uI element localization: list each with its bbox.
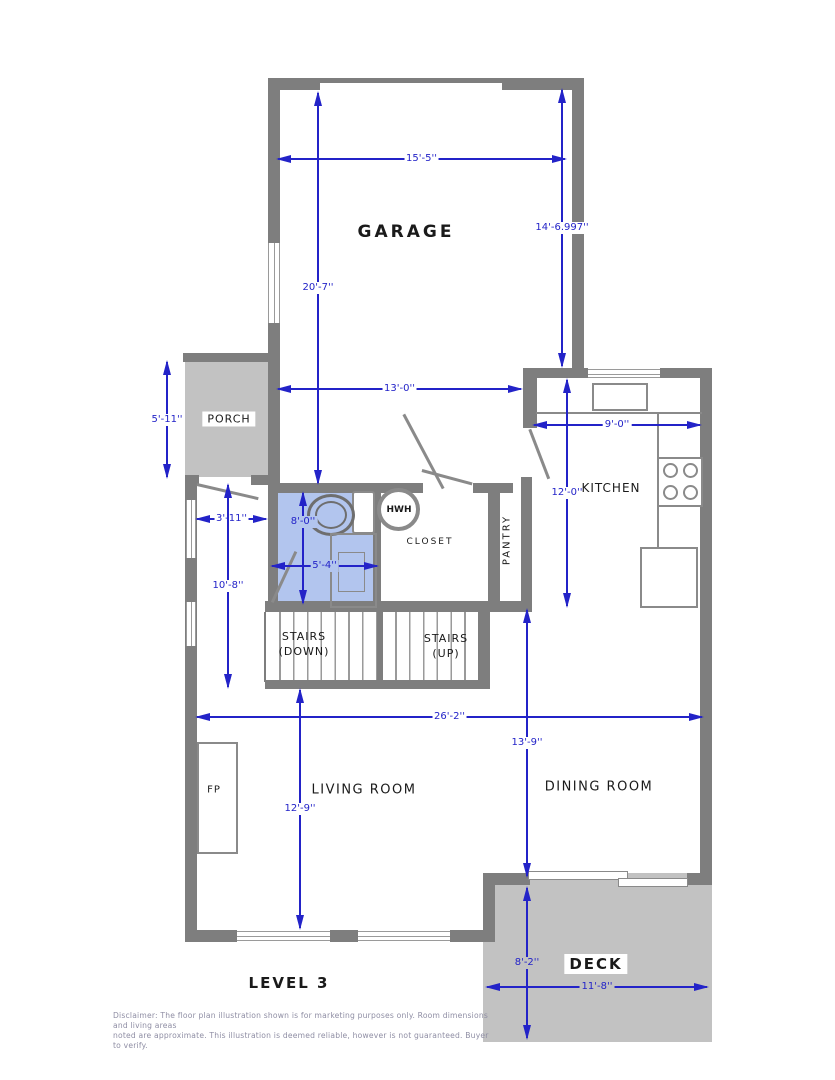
- disclaimer-line2: noted are approximate. This illustration…: [113, 1031, 493, 1051]
- dim-kitchen-width: 9'-0'': [534, 424, 700, 426]
- dim-great-room-width: 26'-2'': [197, 716, 702, 718]
- arrow-down-icon: [163, 464, 171, 479]
- arrow-down-icon: [314, 470, 322, 485]
- wall: [521, 477, 532, 612]
- dim-deck-width: 11'-8'': [487, 986, 707, 988]
- dim-dining-height: 13'-9'': [526, 610, 528, 876]
- window: [358, 931, 450, 941]
- arrow-right-icon: [364, 562, 379, 570]
- arrow-down-icon: [523, 863, 531, 878]
- dim-label: 9'-0'': [603, 419, 632, 431]
- dim-label: 15'-5'': [404, 153, 439, 165]
- arrow-down-icon: [299, 590, 307, 605]
- wall: [523, 368, 537, 428]
- wall: [700, 368, 712, 885]
- dim-bath-width: 5'-4'': [272, 565, 377, 567]
- disclaimer-line1: Disclaimer: The floor plan illustration …: [113, 1011, 493, 1031]
- stairs-up-line2: (UP): [424, 646, 468, 661]
- arrow-right-icon: [552, 155, 567, 163]
- kitchen-door-leaf: [529, 429, 550, 479]
- dim-label: 5'-4'': [310, 560, 339, 572]
- arrow-down-icon: [558, 353, 566, 368]
- arrow-up-icon: [163, 360, 171, 375]
- wall: [183, 353, 268, 362]
- closet-door-swing: [403, 414, 445, 489]
- kitchen-island: [640, 547, 698, 608]
- arrow-right-icon: [253, 515, 268, 523]
- wall: [478, 608, 490, 689]
- wall: [185, 930, 237, 942]
- dim-label: 5'-11'': [150, 414, 185, 426]
- arrow-left-icon: [485, 983, 500, 991]
- arrow-up-icon: [314, 91, 322, 106]
- wall: [264, 612, 266, 682]
- stairs-divider-wall: [377, 612, 383, 682]
- closet-label: CLOSET: [407, 537, 454, 547]
- stairs-up-label: STAIRS (UP): [424, 631, 468, 661]
- window: [237, 931, 330, 941]
- arrow-right-icon: [508, 385, 523, 393]
- porch-label: PORCH: [202, 412, 255, 427]
- toilet-tank: [352, 491, 375, 534]
- arrow-left-icon: [270, 562, 285, 570]
- dim-hall-width: 3'-11'': [197, 518, 266, 520]
- arrow-down-icon: [224, 674, 232, 689]
- window: [186, 602, 196, 646]
- burner-icon: [663, 463, 678, 478]
- kitchen-label: KITCHEN: [582, 481, 641, 495]
- burner-icon: [683, 485, 698, 500]
- arrow-right-icon: [694, 983, 709, 991]
- arrow-up-icon: [563, 378, 571, 393]
- pantry-label: PANTRY: [502, 515, 513, 565]
- wall: [185, 690, 197, 942]
- dim-kitchen-height: 12'-0'': [566, 380, 568, 606]
- dim-bath-height: 8'-0'': [302, 493, 304, 603]
- fireplace-label: FP: [207, 785, 221, 796]
- arrow-left-icon: [532, 421, 547, 429]
- dining-room-label: DINING ROOM: [545, 780, 654, 795]
- disclaimer: Disclaimer: The floor plan illustration …: [113, 1011, 493, 1051]
- arrow-left-icon: [195, 515, 210, 523]
- counter-edge: [536, 412, 702, 414]
- closet-door-leaf: [422, 469, 473, 485]
- dim-label: 20'-7'': [301, 282, 336, 294]
- arrow-left-icon: [276, 155, 291, 163]
- stairs-down-line2: (DOWN): [279, 644, 330, 659]
- garage-door-header: [318, 78, 504, 83]
- arrow-up-icon: [523, 608, 531, 623]
- arrow-right-icon: [687, 421, 702, 429]
- burner-icon: [663, 485, 678, 500]
- arrow-left-icon: [195, 713, 210, 721]
- dim-label: 11'-8'': [580, 981, 615, 993]
- arrow-up-icon: [523, 886, 531, 901]
- burner-icon: [683, 463, 698, 478]
- dim-garage-lower-width: 13'-0'': [278, 388, 521, 390]
- dim-label: 12'-9'': [283, 803, 318, 815]
- wall: [687, 873, 712, 885]
- arrow-up-icon: [558, 88, 566, 103]
- window: [186, 500, 196, 558]
- dim-garage-right: 14'-6.997'': [561, 90, 563, 366]
- arrow-right-icon: [689, 713, 704, 721]
- level-label: LEVEL 3: [249, 974, 330, 992]
- fireplace: [197, 742, 238, 854]
- dim-label: 12'-0'': [550, 487, 585, 499]
- wall: [268, 323, 280, 483]
- stairs-down-label: STAIRS (DOWN): [279, 629, 330, 659]
- dim-label: 26'-2'': [432, 711, 467, 723]
- dim-label: 8'-2'': [513, 957, 542, 969]
- dim-label: 8'-0'': [289, 516, 318, 528]
- living-room-label: LIVING ROOM: [312, 783, 417, 798]
- garage-label: GARAGE: [358, 222, 455, 242]
- dim-label: 13'-9'': [510, 737, 545, 749]
- stairs-up-line1: STAIRS: [424, 631, 468, 646]
- dim-garage-width: 15'-5'': [278, 158, 565, 160]
- dim-porch-height: 5'-11'': [166, 362, 168, 477]
- arrow-left-icon: [276, 385, 291, 393]
- toilet-bowl-inner: [315, 501, 347, 529]
- wall: [251, 475, 268, 485]
- deck-label: DECK: [564, 954, 627, 974]
- wall: [488, 483, 500, 612]
- stairs-down-line1: STAIRS: [279, 629, 330, 644]
- arrow-down-icon: [296, 915, 304, 930]
- sliding-door-panel: [618, 878, 688, 887]
- dim-label: 3'-11'': [214, 513, 249, 525]
- vanity-sink: [338, 552, 365, 592]
- kitchen-sink: [592, 383, 648, 411]
- sliding-door-panel: [528, 871, 628, 880]
- dim-label: 10'-8'': [211, 580, 246, 592]
- window: [588, 369, 660, 378]
- floor-plan: 15'-5'' 20'-7'' 14'-6.997'' 13'-0'' 5'-1…: [0, 0, 835, 1080]
- dim-label: 14'-6.997'': [533, 222, 590, 234]
- arrow-up-icon: [296, 688, 304, 703]
- dim-deck-height: 8'-2'': [526, 888, 528, 1038]
- arrow-up-icon: [299, 491, 307, 506]
- window: [268, 243, 280, 323]
- dim-label: 13'-0'': [382, 383, 417, 395]
- arrow-down-icon: [563, 593, 571, 608]
- stove: [657, 457, 703, 507]
- water-heater-label: HWH: [387, 505, 412, 515]
- dim-hall-height: 10'-8'': [227, 485, 229, 687]
- dim-garage-depth: 20'-7'': [317, 93, 319, 483]
- wall: [330, 930, 358, 942]
- arrow-down-icon: [523, 1025, 531, 1040]
- dim-living-height: 12'-9'': [299, 690, 301, 928]
- arrow-up-icon: [224, 483, 232, 498]
